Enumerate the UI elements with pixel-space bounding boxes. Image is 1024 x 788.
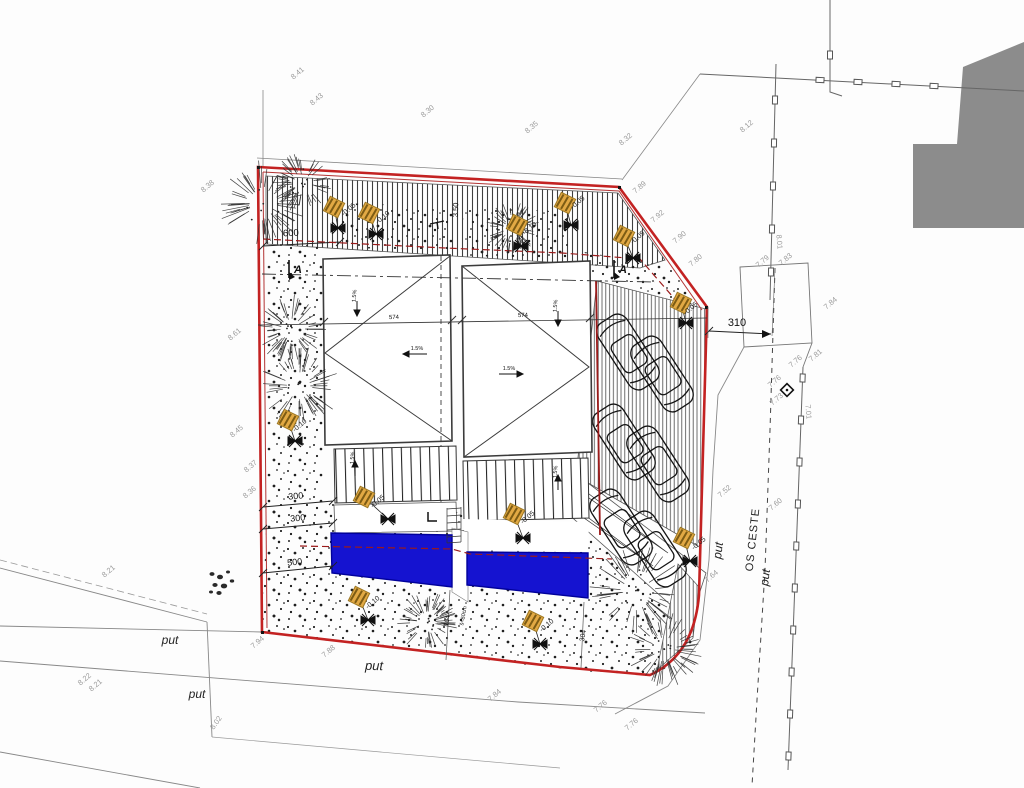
slope-label: 1.5%: [552, 299, 559, 312]
fence-post: [792, 584, 797, 592]
building-2: [462, 261, 592, 457]
site-plan-canvas: 8.418.438.308.358.328.128.388.618.458.37…: [0, 0, 1024, 788]
dimension-label: 3.50: [451, 202, 461, 217]
road-label: put: [757, 568, 773, 588]
road-edge: [212, 737, 560, 768]
elevation-label: 7.89: [631, 179, 648, 195]
slope-label: 1.5%: [351, 289, 358, 302]
dimension-label: 300: [288, 490, 304, 501]
elevation-label: 8.02: [208, 714, 224, 731]
fence-post: [772, 96, 777, 104]
fence-post: [795, 500, 800, 508]
elevation-label: 7.64: [703, 568, 720, 584]
elevation-label: 8.30: [419, 103, 436, 119]
pool-path: [452, 528, 468, 602]
slope-label: 1.5%: [503, 366, 516, 372]
elevation-label: 7.92: [649, 208, 666, 224]
road-label: put: [161, 633, 179, 647]
rock: [217, 575, 223, 580]
elevation-label: 7.80: [687, 252, 704, 268]
rock: [212, 583, 217, 587]
elevation-label: 8.37: [242, 458, 259, 474]
elevation-label: 8.12: [738, 118, 755, 134]
elevation-label: 7.83: [777, 251, 794, 267]
site-plan-drawing: 8.418.438.308.358.328.128.388.618.458.37…: [0, 0, 1024, 788]
fence-post: [787, 710, 792, 718]
road-label: OS CESTE: [744, 507, 763, 572]
fence-post: [798, 416, 803, 424]
elevation-label: 8.38: [199, 178, 216, 194]
elevation-label: 7.88: [320, 643, 337, 659]
elevation-label: 7.60: [767, 496, 784, 512]
elevation-label: 8.21: [100, 563, 117, 579]
fence-post: [768, 268, 773, 276]
dimension-label: 500: [287, 556, 303, 568]
fence-post: [892, 81, 900, 86]
fence-post: [789, 668, 794, 676]
fence-post: [797, 458, 802, 466]
fence-posts: [768, 51, 938, 760]
fence-post: [816, 77, 824, 82]
survey-marker: [781, 384, 794, 397]
road-label: put: [710, 541, 726, 561]
section-letter: A: [618, 264, 627, 276]
elevation-label: 8.32: [617, 131, 634, 147]
section-letter: A: [293, 264, 302, 276]
fence-post: [854, 79, 862, 84]
dimension-label: 600: [283, 228, 299, 240]
elevation-label: 7.73: [768, 391, 785, 407]
elevation-label: 7.94: [249, 634, 266, 650]
fence-post: [791, 626, 796, 634]
fence-post: [930, 83, 938, 88]
fence-post: [794, 542, 799, 550]
rock: [221, 584, 227, 589]
dimension-label: 574: [518, 313, 529, 319]
elevation-label: 8.43: [308, 91, 325, 107]
elevation-label: 7.01: [803, 404, 813, 419]
building-1: [323, 255, 452, 445]
road-entrance: [740, 263, 812, 347]
road-label: put: [188, 687, 206, 701]
elevation-label: 8.35: [523, 119, 540, 135]
rock: [230, 579, 234, 582]
elevation-label: 7.76: [787, 353, 804, 369]
dimension-label: 310: [728, 317, 746, 329]
rock: [210, 572, 215, 576]
elevation-label: 8.36: [241, 484, 258, 500]
road-edge: [0, 626, 262, 632]
elevation-label: 7.76: [623, 716, 640, 732]
elevation-label: 8.01: [774, 234, 784, 249]
fence-post: [771, 139, 776, 147]
fence-post: [786, 752, 791, 760]
road-edge: [0, 752, 200, 788]
rock: [226, 571, 230, 574]
elevation-label: 7.79: [754, 253, 771, 269]
neighbor-building: [913, 42, 1024, 228]
elevation-label: 7.84: [822, 295, 839, 311]
fence-post: [828, 51, 833, 59]
dimension-label: 574: [389, 315, 400, 321]
elevation-label: 8.61: [226, 326, 243, 342]
cadastral-line: [622, 74, 700, 180]
elevation-label: 7.52: [716, 483, 733, 499]
dimension-label: 300: [290, 512, 306, 523]
fence-post: [769, 225, 774, 233]
rock: [209, 591, 213, 594]
elevation-label: 7.76: [766, 373, 783, 389]
rock: [216, 591, 221, 595]
fence-post: [770, 182, 775, 190]
slope-label: 1.5%: [411, 346, 424, 352]
rock-cluster: [209, 571, 234, 595]
elevation-label: 7.76: [592, 698, 609, 714]
elevation-label: 7.90: [671, 229, 688, 245]
terrace-2: [463, 458, 589, 521]
fence-post: [800, 374, 805, 382]
elevation-label: 8.45: [228, 423, 245, 439]
elevation-label: 8.41: [289, 65, 306, 81]
road-label: put: [364, 658, 385, 673]
